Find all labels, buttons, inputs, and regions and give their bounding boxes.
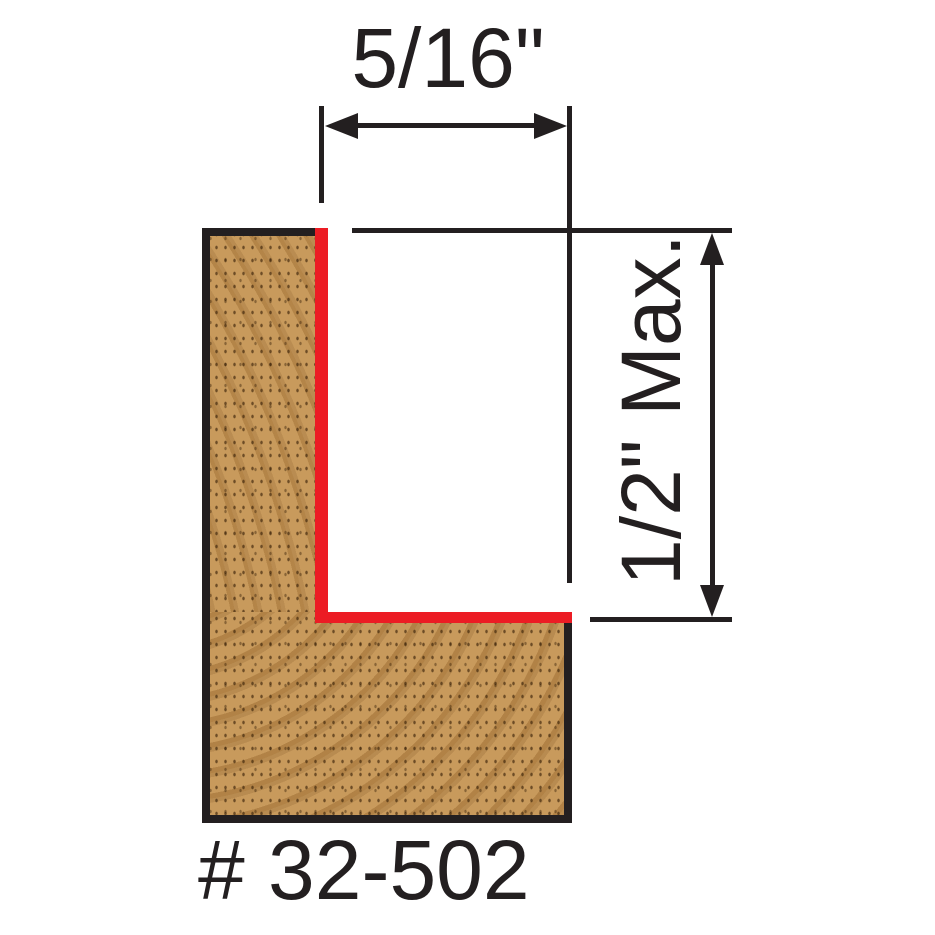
workpiece-border-bottom bbox=[202, 815, 572, 823]
wood-workpiece-lower-section bbox=[203, 612, 572, 823]
depth-arrow-line bbox=[710, 258, 715, 590]
workpiece-border-right bbox=[564, 623, 572, 823]
part-number-label: # 32-502 bbox=[198, 828, 530, 912]
cut-profile-vertical-line bbox=[315, 228, 328, 623]
cut-profile-horizontal-line bbox=[315, 612, 572, 623]
workpiece-border-left bbox=[202, 228, 210, 823]
depth-arrowhead-up-icon bbox=[700, 233, 724, 265]
width-dimension-label: 5/16" bbox=[351, 16, 544, 100]
workpiece-border-top bbox=[202, 228, 316, 236]
width-arrow-line bbox=[352, 123, 540, 128]
width-arrowhead-left-icon bbox=[325, 113, 358, 139]
width-arrowhead-right-icon bbox=[534, 113, 567, 139]
depth-extension-line-bottom bbox=[590, 617, 732, 622]
wood-workpiece-vertical-section bbox=[203, 228, 328, 623]
depth-dimension-label: 1/2" Max. bbox=[609, 234, 693, 586]
width-extension-line-left bbox=[319, 106, 324, 203]
depth-arrowhead-down-icon bbox=[700, 585, 724, 617]
width-extension-line-right bbox=[567, 106, 572, 583]
depth-extension-line-top bbox=[352, 228, 732, 233]
cutting-profile-diagram: 5/16" 1/2" Max. # 32-502 bbox=[0, 0, 935, 935]
